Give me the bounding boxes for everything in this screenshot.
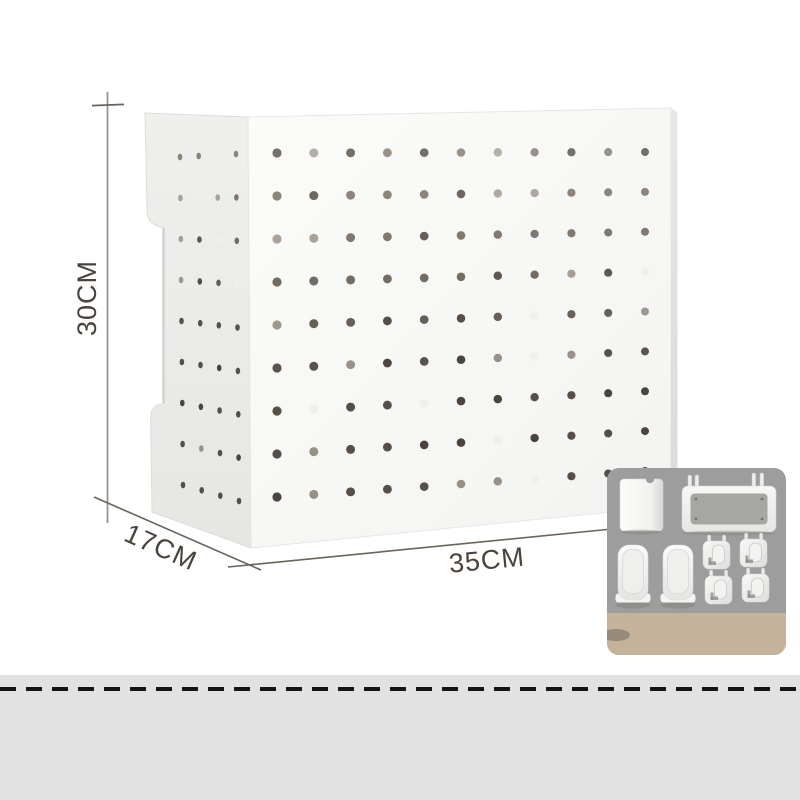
peg-hole (234, 151, 239, 158)
long-tray-inner (623, 550, 644, 594)
hook-lip (711, 597, 719, 601)
peg-hole (383, 359, 392, 368)
peg-hole (420, 148, 429, 157)
long-tray-shadow (616, 602, 650, 609)
peg-hole (604, 309, 612, 317)
hook-inner (713, 545, 725, 564)
peg-hole (383, 316, 392, 325)
peg-hole (494, 436, 502, 444)
peg-hole (383, 401, 392, 410)
peg-hole (494, 395, 502, 403)
peg-hole (346, 360, 355, 369)
peg-hole (457, 190, 466, 199)
peg-hole (383, 190, 392, 199)
peg-hole (272, 234, 281, 243)
peg-hole (217, 407, 222, 414)
peg-hole (346, 403, 355, 412)
peg-hole (180, 400, 185, 407)
peg-hole (215, 152, 220, 159)
peg-hole (641, 268, 649, 276)
peg-hole (383, 485, 392, 494)
peg-hole (217, 365, 222, 372)
peg-hole (457, 355, 466, 364)
peg-hole (530, 434, 538, 442)
long-tray-accessory (661, 545, 696, 609)
peg-hole (272, 449, 281, 458)
peg-hole (530, 271, 538, 279)
peg-hole (641, 148, 649, 156)
peg-hole (272, 148, 281, 157)
peg-hole (272, 320, 281, 329)
peg-hole (179, 236, 184, 243)
peg-hole (641, 308, 649, 316)
peg-hole (179, 277, 184, 284)
peg-hole (494, 354, 502, 362)
peg-hole (346, 318, 355, 327)
peg-hole (234, 194, 239, 201)
peg-hole (420, 274, 429, 283)
product-box (145, 108, 678, 548)
peg-hole (383, 232, 392, 241)
peg-hole (309, 191, 318, 200)
peg-hole (272, 191, 281, 200)
peg-hole (309, 319, 318, 328)
peg-hole (530, 148, 538, 156)
peg-hole (604, 389, 612, 397)
peg-hole (218, 492, 223, 499)
peg-hole (309, 490, 318, 499)
peg-hole (309, 148, 318, 157)
peg-hole (272, 492, 281, 501)
peg-hole (420, 482, 429, 491)
product-dimension-figure: 30CM 17CM 35CM (0, 0, 800, 800)
hook-inner (715, 580, 727, 599)
peg-hole (530, 230, 538, 238)
peg-hole (198, 362, 203, 369)
hook-lip (748, 595, 756, 599)
inset-shadow (602, 629, 630, 641)
peg-hole (180, 359, 185, 366)
box-right-edge (671, 108, 678, 506)
peg-hole (235, 281, 240, 288)
peg-hole (346, 148, 355, 157)
peg-hole (272, 277, 281, 286)
peg-hole (309, 276, 318, 285)
peg-hole (604, 429, 612, 437)
peg-hole (494, 272, 502, 280)
width-label: 35CM (448, 542, 527, 579)
peg-hole (604, 148, 612, 156)
peg-hole (567, 351, 575, 359)
peg-hole (196, 153, 201, 160)
peg-hole (199, 404, 204, 411)
peg-hole (457, 231, 466, 240)
stitch-band (0, 675, 800, 800)
peg-hole (216, 237, 221, 244)
peg-hole (383, 274, 392, 283)
box-side-panel (145, 113, 251, 548)
peg-hole (197, 195, 202, 202)
peg-hole (178, 195, 183, 202)
peg-hole (457, 480, 466, 489)
peg-hole (641, 347, 649, 355)
peg-hole (567, 472, 575, 480)
peg-hole (199, 445, 204, 452)
storage-cup-accessory (620, 475, 663, 535)
peg-hole (604, 269, 612, 277)
height-dimension-tick (92, 104, 124, 105)
peg-hole (198, 320, 203, 327)
peg-hole (197, 236, 202, 243)
peg-hole (309, 362, 318, 371)
hook-inner (750, 543, 762, 562)
peg-hole (346, 191, 355, 200)
peg-hole (567, 148, 575, 156)
peg-hole (420, 441, 429, 450)
long-tray-shadow (661, 602, 695, 609)
cup-notch (646, 475, 654, 483)
peg-hole (604, 188, 612, 196)
peg-hole (383, 148, 392, 157)
peg-hole (178, 154, 183, 161)
peg-hole (180, 441, 185, 448)
peg-hole (567, 432, 575, 440)
peg-hole (567, 270, 575, 278)
peg-hole (181, 482, 186, 489)
peg-hole (494, 477, 502, 485)
peg-hole (604, 228, 612, 236)
peg-hole (457, 438, 466, 447)
peg-hole (198, 278, 203, 285)
peg-hole (457, 273, 466, 282)
peg-hole (237, 498, 242, 505)
peg-hole (420, 190, 429, 199)
peg-hole (179, 318, 184, 325)
peg-hole (235, 324, 240, 331)
peg-hole (346, 487, 355, 496)
peg-hole (420, 399, 429, 408)
peg-hole (530, 352, 538, 360)
peg-hole (346, 445, 355, 454)
peg-hole (530, 475, 538, 483)
peg-hole (457, 148, 466, 157)
hook-lip (746, 560, 754, 564)
peg-hole (346, 275, 355, 284)
figure-canvas: 30CM 17CM 35CM (0, 0, 800, 800)
height-label: 30CM (72, 260, 102, 336)
peg-hole (641, 188, 649, 196)
peg-hole (236, 368, 241, 375)
peg-hole (457, 397, 466, 406)
peg-hole (567, 229, 575, 237)
peg-hole (217, 322, 222, 329)
peg-hole (199, 487, 204, 494)
accessory-inset (602, 468, 786, 655)
peg-hole (383, 443, 392, 452)
peg-hole (420, 232, 429, 241)
peg-hole (236, 411, 241, 418)
peg-hole (218, 450, 223, 457)
peg-hole (215, 194, 220, 201)
hook-lip (709, 562, 717, 566)
peg-hole (309, 234, 318, 243)
inset-table-strip (607, 613, 786, 655)
peg-hole (494, 230, 502, 238)
long-tray-accessory (616, 545, 651, 609)
peg-hole (346, 233, 355, 242)
peg-hole (641, 387, 649, 395)
peg-hole (216, 280, 221, 287)
bottom-band (0, 675, 800, 800)
peg-hole (309, 404, 318, 413)
peg-hole (567, 310, 575, 318)
peg-hole (420, 357, 429, 366)
peg-hole (604, 349, 612, 357)
peg-hole (457, 314, 466, 323)
peg-hole (641, 228, 649, 236)
peg-hole (235, 238, 240, 245)
peg-hole (272, 406, 281, 415)
peg-hole (420, 315, 429, 324)
peg-hole (309, 447, 318, 456)
peg-hole (494, 148, 502, 156)
peg-hole (272, 363, 281, 372)
peg-hole (567, 189, 575, 197)
peg-hole (530, 393, 538, 401)
peg-hole (530, 189, 538, 197)
long-tray-inner (668, 550, 689, 594)
hook-inner (752, 578, 764, 597)
tray-interior (691, 494, 768, 525)
peg-hole (641, 427, 649, 435)
peg-hole (236, 454, 241, 461)
peg-hole (530, 311, 538, 319)
peg-hole (494, 313, 502, 321)
peg-hole (494, 189, 502, 197)
peg-hole (567, 391, 575, 399)
cup-shadow (621, 530, 661, 535)
